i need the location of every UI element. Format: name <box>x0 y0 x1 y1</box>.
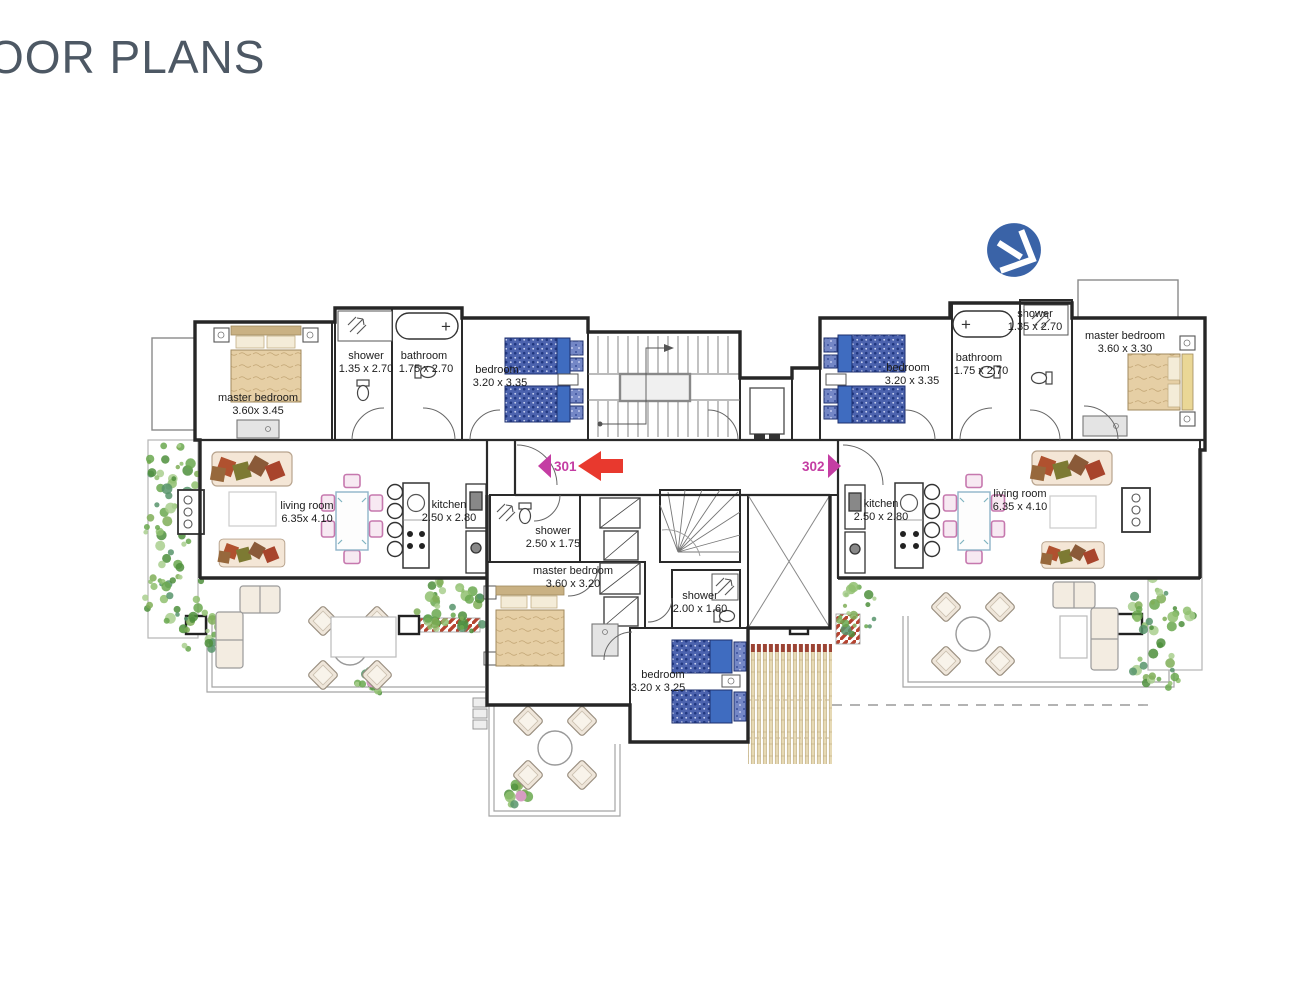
dims-left-bedroom: 3.20 x 3.35 <box>473 377 527 389</box>
floor-plan-drawing: + + <box>0 0 1308 981</box>
label-right-bedroom: bedroom <box>886 362 929 374</box>
label-center-bedroom: bedroom <box>641 669 684 681</box>
dims-center-shower1: 2.50 x 1.75 <box>526 538 580 550</box>
dims-right-kitchen: 2.50 x 2.80 <box>854 511 908 523</box>
rug-left <box>229 492 276 526</box>
sofa-left-top <box>210 452 292 486</box>
svg-text:+: + <box>441 317 451 336</box>
sofa-left-bottom <box>217 539 284 567</box>
room-balcony-top-right <box>1078 280 1178 318</box>
toilet-center-shower1 <box>519 503 531 524</box>
dims-left-bathroom: 1.75 x 2.70 <box>399 363 453 375</box>
elevator-cab <box>750 388 784 439</box>
terrace-dining-set-right <box>930 591 1015 676</box>
terrace-dining-set-center <box>512 705 597 790</box>
dims-left-shower: 1.35 x 2.70 <box>339 363 393 375</box>
unit-301-number: 301 <box>554 459 577 474</box>
dresser-left-master <box>237 420 279 438</box>
svg-text:+: + <box>961 315 971 334</box>
kitchen-counter-left <box>403 483 429 568</box>
label-left-master: master bedroom <box>218 392 298 404</box>
label-center-master: master bedroom <box>533 565 613 577</box>
terrace-steps <box>473 698 487 729</box>
dims-left-kitchen: 2.50 x 2.80 <box>422 512 476 524</box>
dims-center-bedroom: 3.20 x 3.25 <box>631 682 685 694</box>
dims-right-master: 3.60 x 3.30 <box>1098 343 1152 355</box>
toilet-right-shower <box>1032 372 1053 384</box>
kitchen-appliances-right <box>845 485 865 573</box>
terrace-lounge-left <box>216 586 396 668</box>
toilet-left-shower <box>357 380 369 401</box>
kitchen-counter-right <box>895 483 923 568</box>
label-center-shower1: shower <box>535 525 571 537</box>
label-left-bathroom: bathroom <box>401 350 447 362</box>
dims-center-master: 3.60 x 3.20 <box>546 578 600 590</box>
dims-right-bathroom: 1.75 x 2.70 <box>954 365 1008 377</box>
dims-left-living: 6.35x 4.10 <box>281 513 332 525</box>
terrace-lounge-right <box>1053 582 1118 670</box>
label-right-master: master bedroom <box>1085 330 1165 342</box>
sofa-right-bottom <box>1040 542 1104 569</box>
pergola <box>748 644 832 764</box>
bathtub-right: + <box>953 311 1013 337</box>
label-right-shower: shower <box>1017 308 1053 320</box>
console-right <box>1122 488 1150 532</box>
label-left-kitchen: kitchen <box>432 499 467 511</box>
label-left-living: living room <box>280 500 333 512</box>
floor-plans-page: OOR PLANS <box>0 0 1308 981</box>
dims-right-shower: 1.35 x 2.70 <box>1008 321 1062 333</box>
room-spiral-stair <box>660 490 740 562</box>
sofa-right-top <box>1030 451 1112 485</box>
room-balcony-left <box>152 338 195 430</box>
bathtub-left: + <box>396 313 458 339</box>
tv-stand-right-master <box>1083 416 1127 436</box>
rug-right <box>1050 496 1096 528</box>
unit-302-number: 302 <box>802 459 825 474</box>
label-left-shower: shower <box>348 350 384 362</box>
label-left-bedroom: bedroom <box>475 364 518 376</box>
kitchen-appliances-left <box>466 484 486 573</box>
label-center-shower2: shower <box>682 590 718 602</box>
label-right-kitchen: kitchen <box>864 498 899 510</box>
label-right-living: living room <box>993 488 1046 500</box>
dims-right-bedroom: 3.20 x 3.35 <box>885 375 939 387</box>
dims-right-living: 6.35 x 4.10 <box>993 501 1047 513</box>
dims-center-shower2: 2.00 x 1.60 <box>673 603 727 615</box>
label-right-bathroom: bathroom <box>956 352 1002 364</box>
dims-left-master: 3.60x 3.45 <box>232 405 283 417</box>
